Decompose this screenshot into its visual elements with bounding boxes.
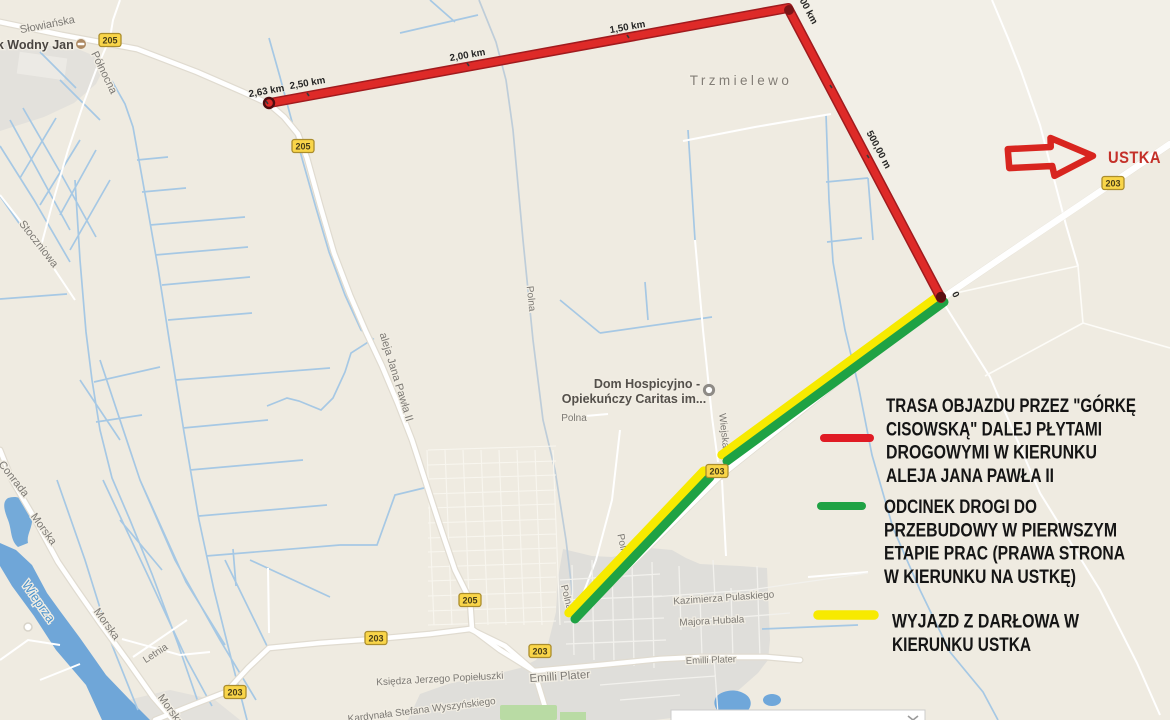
svg-text:WYJAZD Z DARŁOWA W: WYJAZD Z DARŁOWA W: [892, 612, 1079, 633]
svg-text:203: 203: [709, 466, 724, 476]
svg-text:203: 203: [227, 687, 242, 697]
svg-text:205: 205: [295, 141, 310, 151]
svg-text:205: 205: [462, 595, 477, 605]
svg-text:W KIERUNKU NA USTKĘ): W KIERUNKU NA USTKĘ): [884, 567, 1076, 588]
svg-text:Polna: Polna: [561, 413, 587, 424]
svg-text:rk Wodny Jan: rk Wodny Jan: [0, 38, 74, 52]
svg-text:Opiekuńczy Caritas im...: Opiekuńczy Caritas im...: [562, 392, 707, 406]
svg-text:Dom Hospicyjno -: Dom Hospicyjno -: [594, 377, 700, 391]
svg-text:ETAPIE PRAC (PRAWA STRONA: ETAPIE PRAC (PRAWA STRONA: [884, 544, 1125, 565]
svg-text:DROGOWYMI W KIERUNKU: DROGOWYMI W KIERUNKU: [886, 443, 1097, 464]
svg-text:203: 203: [1105, 178, 1120, 188]
svg-text:PRZEBUDOWY W PIERWSZYM: PRZEBUDOWY W PIERWSZYM: [884, 520, 1117, 541]
svg-text:TRASA OBJAZDU PRZEZ "GÓRKĘ: TRASA OBJAZDU PRZEZ "GÓRKĘ: [886, 395, 1136, 417]
svg-text:Emilli Plater: Emilli Plater: [686, 654, 737, 667]
svg-text:205: 205: [102, 35, 117, 45]
svg-text:203: 203: [368, 633, 383, 643]
svg-text:203: 203: [532, 646, 547, 656]
svg-text:USTKA: USTKA: [1108, 149, 1161, 167]
svg-text:KIERUNKU USTKA: KIERUNKU USTKA: [892, 635, 1031, 656]
svg-text:Trzmielewo: Trzmielewo: [690, 73, 793, 88]
svg-text:ALEJA JANA PAWŁA II: ALEJA JANA PAWŁA II: [886, 466, 1054, 487]
svg-text:ODCINEK DROGI DO: ODCINEK DROGI DO: [884, 497, 1037, 518]
svg-text:CISOWSKĄ" DALEJ PŁYTAMI: CISOWSKĄ" DALEJ PŁYTAMI: [886, 419, 1102, 440]
